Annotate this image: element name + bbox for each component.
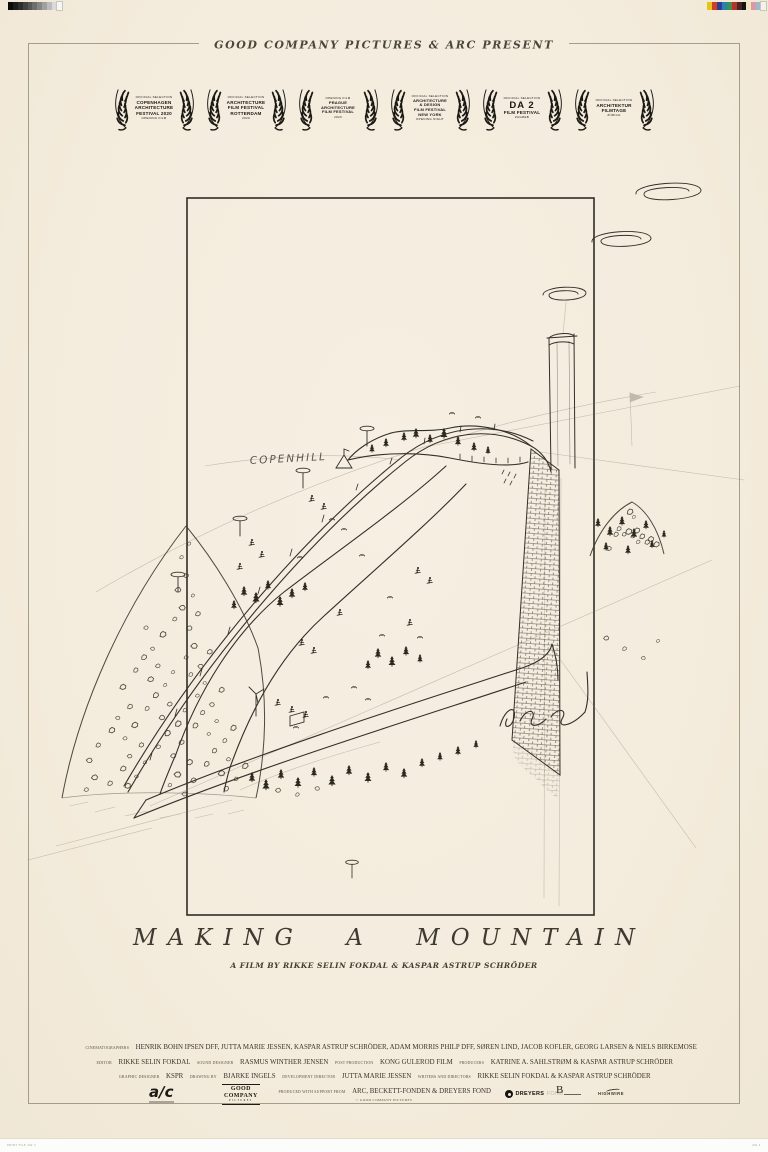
dreyers-fond-text-bold: DREYERS [516,1091,545,1097]
credit-name: JUTTA MARIE JESSEN [342,1073,412,1080]
laurel-branch-icon [388,82,407,134]
credit-role: WRITERS AND DIRECTORS [418,1075,471,1079]
arc-logo-caption [149,1101,174,1103]
credit-name: RIKKE SELIN FOKDAL [118,1059,190,1066]
credit-role: DRAWING BY [190,1075,217,1079]
credit-name: ARC, BECKETT-FONDEN & DREYERS FOND [352,1088,491,1095]
credit-name: RASMUS WINTHER JENSEN [240,1059,328,1066]
laurel-branch-icon [204,82,223,134]
laurel-branch-icon [178,82,197,134]
laurel-branch-icon [546,82,565,134]
credit-name: HENRIK BOHN IPSEN DFF, JUTTA MARIE JESSE… [136,1044,697,1051]
support-block: PRODUCED WITH SUPPORT FROM ARC, BECKETT-… [234,1083,534,1102]
credit-role: GRAPHIC DESIGNER [119,1075,160,1079]
beckett-fonden-logo: B [556,1085,581,1096]
poster-canvas: GOOD COMPANY PICTURES & ARC PRESENT OFFI… [0,0,768,1152]
laurel-line: 2020 [223,117,270,121]
laurel-branch-icon [296,82,315,134]
dreyers-fond-icon [505,1090,513,1098]
laurel-branch-icon [270,82,289,134]
color-calibration-bar [707,2,766,10]
laurels-row: OFFICIAL SELECTIONCOPENHAGENARCHITECTURE… [0,80,768,136]
credit-name: KATRINE A. SAHLSTRØM & KASPAR ASTRUP SCH… [491,1059,673,1066]
beckett-fonden-letter: B [556,1085,563,1096]
credit-name: BJARKE INGELS [223,1073,275,1080]
film-byline: A FILM BY RIKKE SELIN FOKDAL & KASPAR AS… [0,961,768,970]
laurel-line: OFFICIAL SELECTION [591,99,638,103]
credit-line: CINEMATOGRAPHERS HENRIK BOHN IPSEN DFF, … [84,1039,684,1054]
credit-role: CINEMATOGRAPHERS [86,1046,130,1050]
laurel-copenhagen-architecture-festival: OFFICIAL SELECTIONCOPENHAGENARCHITECTURE… [112,80,197,136]
copyright-text: © GOOD COMPANY PICTURES [234,1098,534,1102]
highwire-logo: HIGHWIRE [598,1091,768,1096]
credit-role: SOUND DESIGNER [197,1061,233,1065]
laurel-architektur-filmtage-zurich: OFFICIAL SELECTIONARCHITEKTURFILMTAGEZÜR… [572,80,657,136]
laurel-line: OFFICIAL SELECTION [131,96,178,100]
credits-block: CINEMATOGRAPHERS HENRIK BOHN IPSEN DFF, … [84,1039,684,1083]
laurel-line: FILM FESTIVAL [223,105,270,110]
laurel-text: OFFICIAL SELECTIONCOPENHAGENARCHITECTURE… [131,95,178,120]
print-file-note-right: AW 1 [752,1143,761,1147]
print-margin-strip: PRINT FILE AW 1 AW 1 [0,1138,768,1152]
credit-role: PRODUCED WITH SUPPORT FROM [279,1090,346,1094]
laurel-text: OFFICIAL SELECTIONARCHITECTURE& DESIGNFI… [407,94,454,122]
laurel-branch-icon [480,82,499,134]
laurel-line: ARCHITECTURE [131,105,178,110]
laurel-architecture-film-festival-rotterdam: OFFICIAL SELECTIONARCHITECTUREFILM FESTI… [204,80,289,136]
laurel-text: OFFICIAL SELECTIONDA 2FILM FESTIVALZAGRE… [499,96,546,120]
calibration-cell [57,2,62,10]
laurel-line: ZÜRICH [591,114,638,118]
credit-role: EDITOR [96,1061,111,1065]
print-file-note-left: PRINT FILE AW 1 [7,1143,36,1147]
laurel-da2-film-festival: OFFICIAL SELECTIONDA 2FILM FESTIVALZAGRE… [480,80,565,136]
arc-logo-text: a∕c [149,1083,174,1101]
laurel-architecture-design-film-festival-new-york: OFFICIAL SELECTIONARCHITECTURE& DESIGNFI… [388,80,473,136]
credit-line: EDITOR RIKKE SELIN FOKDAL SOUND DESIGNER… [84,1054,684,1069]
laurel-prague-architecture-film-festival: OPENING FILMPRAGUEARCHITECTUREFILM FESTI… [296,80,381,136]
laurel-line: 2020 [315,116,362,120]
credit-name: KONG GULEROD FILM [380,1059,453,1066]
arc-logo: a∕c [149,1085,174,1103]
laurel-line: OPENING FILM [131,117,178,121]
film-title: MAKING A MOUNTAIN [0,925,768,951]
beckett-fonden-underline [564,1094,581,1095]
laurel-text: OFFICIAL SELECTIONARCHITECTUREFILM FESTI… [223,95,270,120]
credit-role: DEVELOPMENT DIRECTOR [282,1075,335,1079]
laurel-line: DA 2 [499,101,546,111]
presenter-banner: GOOD COMPANY PICTURES & ARC PRESENT [28,34,740,53]
laurel-line: OFFICIAL SELECTION [223,96,270,100]
calibration-cell [761,2,766,10]
laurel-branch-icon [572,82,591,134]
credit-line: GRAPHIC DESIGNER KSPR DRAWING BY BJARKE … [84,1068,684,1083]
presenter-text: GOOD COMPANY PICTURES & ARC PRESENT [199,39,569,52]
laurel-line: OPENING NIGHT [407,118,454,122]
support-line: PRODUCED WITH SUPPORT FROM ARC, BECKETT-… [234,1083,534,1097]
laurel-branch-icon [362,82,381,134]
laurel-line: ZAGREB [499,116,546,120]
laurel-branch-icon [454,82,473,134]
grayscale-calibration-bar [8,2,62,10]
laurel-branch-icon [638,82,657,134]
dreyers-fond-logo: DREYERS FOND [505,1090,564,1098]
credit-name: RIKKE SELIN FOKDAL & KASPAR ASTRUP SCHRÖ… [478,1073,651,1080]
laurel-text: OPENING FILMPRAGUEARCHITECTUREFILM FESTI… [315,96,362,119]
laurel-text: OFFICIAL SELECTIONARCHITEKTURFILMTAGEZÜR… [591,98,638,118]
credit-name: KSPR [166,1073,183,1080]
laurel-branch-icon [112,82,131,134]
